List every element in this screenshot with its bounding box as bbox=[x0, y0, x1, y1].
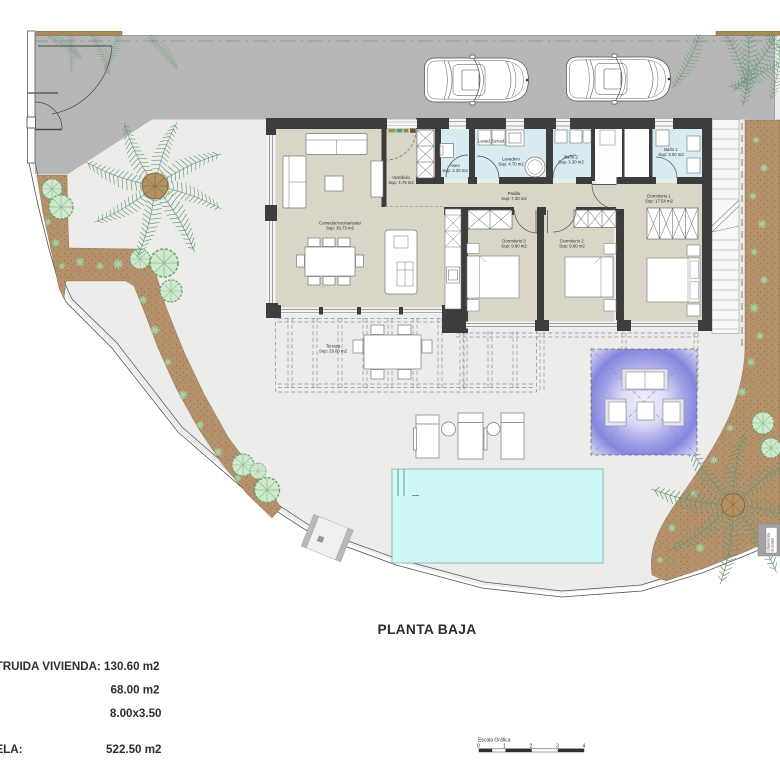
svg-text:Sup: 36.73 m2: Sup: 36.73 m2 bbox=[326, 226, 355, 231]
svg-text:Sup: 7.30 m2: Sup: 7.30 m2 bbox=[501, 196, 527, 201]
svg-text:Sup: 9.60 m2: Sup: 9.60 m2 bbox=[559, 244, 585, 249]
svg-text:Sup: 3.30 m2: Sup: 3.30 m2 bbox=[558, 160, 584, 165]
svg-text:522.50 m2: 522.50 m2 bbox=[106, 743, 161, 756]
svg-text:Sup: 17.54 m2: Sup: 17.54 m2 bbox=[645, 199, 674, 204]
svg-text:68.00 m2: 68.00 m2 bbox=[111, 684, 160, 697]
svg-text:Sup: 29.60 m2: Sup: 29.60 m2 bbox=[319, 349, 348, 354]
svg-text:Lavad.: Lavad. bbox=[478, 139, 491, 144]
svg-text:El dorado: El dorado bbox=[771, 538, 775, 552]
svg-text:Sup: 2.20 m2: Sup: 2.20 m2 bbox=[442, 168, 468, 173]
svg-text:8.00x3.50: 8.00x3.50 bbox=[110, 707, 162, 720]
svg-text:Sup: 9.80 m2: Sup: 9.80 m2 bbox=[501, 244, 527, 249]
svg-text:Escala Gráfica: Escala Gráfica bbox=[478, 738, 511, 744]
svg-text:PLANTA BAJA: PLANTA BAJA bbox=[377, 622, 476, 637]
svg-text:SUPERFICIE CONSTRUIDA VIVIENDA: SUPERFICIE CONSTRUIDA VIVIENDA: 130.60 m… bbox=[0, 660, 160, 673]
svg-text:Sup: 4.75 m2: Sup: 4.75 m2 bbox=[388, 180, 414, 185]
svg-text:SUPERFICIE PARCELA:: SUPERFICIE PARCELA: bbox=[0, 743, 23, 756]
svg-text:Sup: 4.70 m2: Sup: 4.70 m2 bbox=[498, 162, 524, 167]
svg-text:Sup: 3.00 m2: Sup: 3.00 m2 bbox=[658, 152, 684, 157]
svg-text:Secad.: Secad. bbox=[492, 139, 505, 144]
